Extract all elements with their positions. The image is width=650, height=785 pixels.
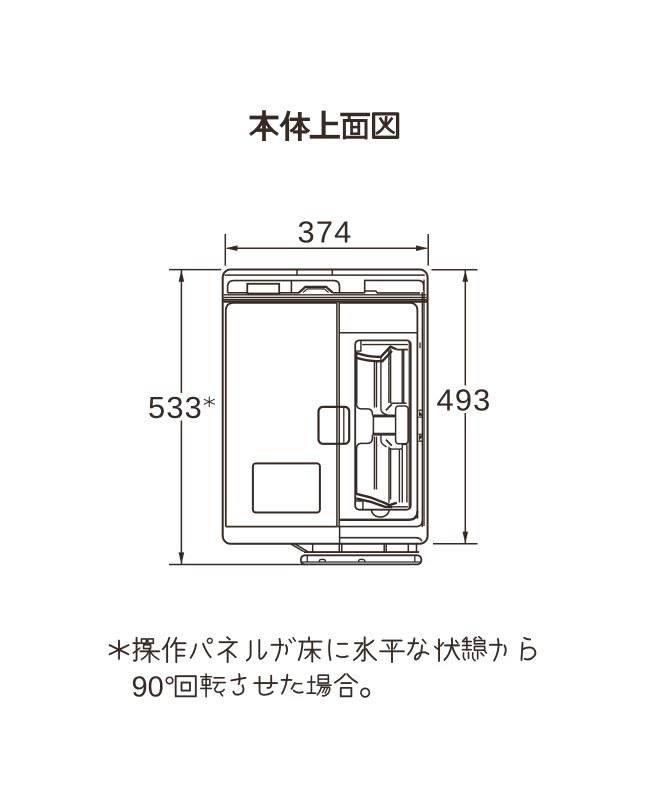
svg-text:90°: 90° — [132, 672, 176, 704]
svg-text:533: 533 — [148, 390, 203, 425]
svg-text:374: 374 — [298, 214, 353, 249]
svg-text:493: 493 — [437, 383, 492, 418]
